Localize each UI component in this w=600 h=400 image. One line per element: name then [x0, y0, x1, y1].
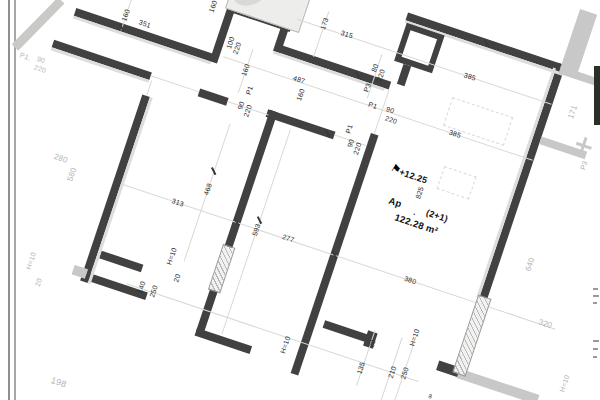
dim-label: H=10 [408, 328, 420, 347]
dim-label: 825 [414, 186, 425, 200]
level-value: +12.25 [398, 168, 428, 186]
dim-label: 320 [537, 318, 553, 330]
dim-label: 160 [295, 88, 306, 102]
dim-label: 385 [463, 71, 477, 82]
dim-label: 90 [36, 55, 46, 64]
window-hatch [452, 294, 491, 376]
adjacent-drawing-strip [594, 66, 600, 125]
dim-label: 160 [240, 63, 251, 77]
fixture-outline [443, 97, 513, 146]
dim-label: 20 [172, 273, 181, 283]
edge-text-fragment [593, 356, 597, 358]
dim-label: H=10 [25, 251, 37, 270]
floor-plan: ⚑160351160100220160P19022016017331548780… [0, 0, 600, 400]
wall-segment [480, 63, 566, 300]
neighbor-wall [457, 368, 540, 400]
fixture-outline [437, 166, 477, 200]
dim-label: 160 [120, 8, 131, 22]
dim-label: 20 [34, 277, 43, 287]
edge-text-fragment [593, 302, 597, 304]
dim-label: 8 [428, 393, 433, 400]
dim-label: P3 [362, 82, 371, 93]
edge-text-fragment [593, 348, 598, 350]
dim-label: P1. [19, 51, 32, 61]
dim-label: 593 [251, 223, 262, 237]
dim-label: 640 [524, 257, 536, 273]
dim-label: 315 [340, 29, 354, 40]
floor-plan-sheet: ⚑160351160100220160P19022016017331548780… [0, 0, 600, 400]
dim-label: 250 [148, 284, 159, 298]
dim-label: H=10 [279, 335, 291, 354]
dim-label: 280 [53, 153, 69, 165]
edge-text-fragment [593, 295, 599, 297]
dim-label: 20 [368, 338, 377, 348]
dim-label: H=10 [558, 374, 570, 393]
neighbor-wall [560, 9, 597, 74]
edge-text-fragment [593, 340, 599, 342]
wall-segment [99, 251, 143, 273]
dim-label: 135 [356, 361, 367, 375]
apartment-name: Ap [387, 196, 402, 209]
dim-label: 171 [567, 104, 579, 120]
sheet-border-line [14, 0, 16, 400]
dim-label: 210 [387, 365, 398, 379]
dim-label: 220 [33, 64, 47, 75]
dim-label: 351 [138, 18, 152, 29]
dim-label: 580 [66, 167, 78, 183]
dim-label: P1 [244, 85, 253, 96]
dim-label: H=10 [165, 247, 177, 266]
wall-segment [198, 89, 229, 106]
dim-label: 198 [50, 376, 68, 389]
dim-label: 487 [292, 74, 306, 85]
dim-label: 277 [281, 233, 295, 244]
dim-label: 220 [384, 115, 398, 126]
dimension-line [146, 81, 152, 96]
dim-label: 313 [171, 197, 185, 208]
window-hatch [208, 244, 236, 294]
wall-face-line [51, 47, 150, 83]
dim-label: 160 [208, 0, 219, 13]
edge-text-fragment [593, 288, 598, 290]
sheet-border-line [8, 0, 10, 400]
dim-label: P3 [579, 160, 588, 171]
dim-label: 380 [403, 275, 417, 286]
dimension-line [151, 75, 200, 92]
dim-label: 468 [202, 182, 213, 196]
wall-segment [52, 40, 152, 80]
dim-label: P1 [344, 124, 353, 135]
